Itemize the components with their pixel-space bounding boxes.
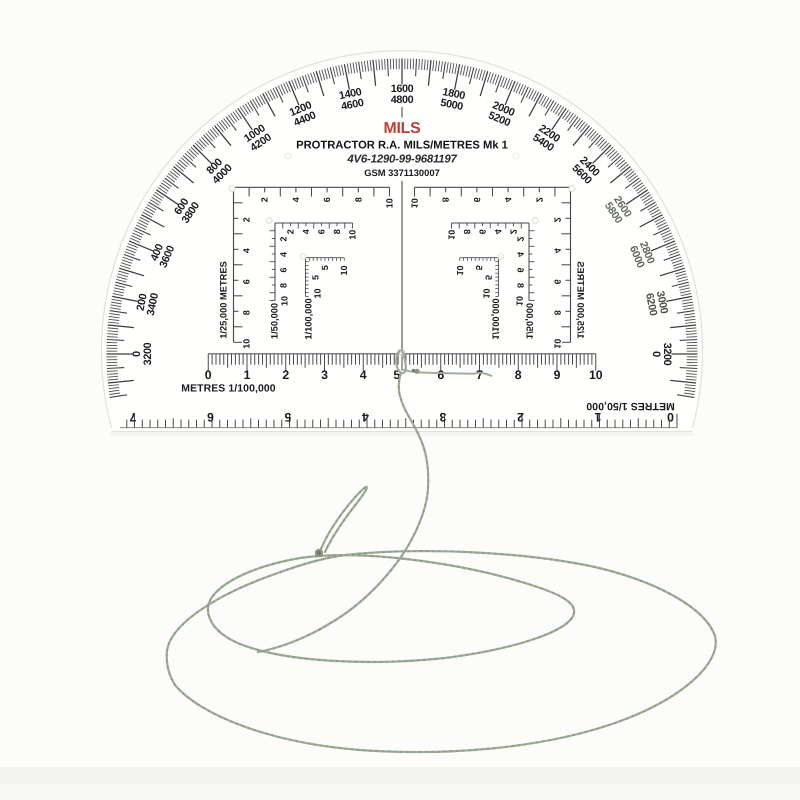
svg-text:10: 10 xyxy=(589,368,603,382)
svg-text:6: 6 xyxy=(207,410,214,424)
svg-text:2: 2 xyxy=(286,229,296,234)
svg-text:3: 3 xyxy=(439,410,446,424)
svg-text:8: 8 xyxy=(242,310,252,315)
svg-text:GSM 3371130007: GSM 3371130007 xyxy=(364,167,440,178)
svg-text:0: 0 xyxy=(650,351,662,357)
svg-text:8: 8 xyxy=(279,283,289,288)
svg-text:MILS: MILS xyxy=(384,120,421,137)
svg-text:10: 10 xyxy=(242,339,252,349)
svg-text:4: 4 xyxy=(291,197,301,202)
svg-text:2: 2 xyxy=(242,217,252,222)
svg-text:6: 6 xyxy=(242,279,252,284)
svg-text:6: 6 xyxy=(322,197,332,202)
svg-text:4V6-1290-99-9681197: 4V6-1290-99-9681197 xyxy=(346,153,457,165)
svg-text:METRES 1/100,000: METRES 1/100,000 xyxy=(181,384,276,395)
svg-text:8: 8 xyxy=(515,368,522,382)
svg-text:2: 2 xyxy=(517,410,524,424)
svg-text:1/25,000 METRES: 1/25,000 METRES xyxy=(219,261,229,339)
svg-text:METRES 1/50,000: METRES 1/50,000 xyxy=(586,400,675,411)
svg-text:4: 4 xyxy=(360,368,367,382)
svg-text:5: 5 xyxy=(320,265,330,270)
svg-text:3200: 3200 xyxy=(142,342,154,365)
svg-text:2: 2 xyxy=(282,368,289,382)
svg-text:6: 6 xyxy=(317,229,327,234)
svg-text:6: 6 xyxy=(437,368,444,382)
svg-text:5: 5 xyxy=(311,275,321,280)
svg-text:4: 4 xyxy=(301,229,311,234)
svg-text:10: 10 xyxy=(385,198,395,208)
svg-text:10: 10 xyxy=(313,288,323,298)
svg-text:10: 10 xyxy=(348,230,358,240)
svg-text:4: 4 xyxy=(242,248,252,253)
svg-text:1/50,000: 1/50,000 xyxy=(270,303,280,339)
svg-text:5: 5 xyxy=(284,410,291,424)
svg-text:1/100,000: 1/100,000 xyxy=(304,298,314,339)
svg-text:4: 4 xyxy=(279,252,289,257)
svg-text:2: 2 xyxy=(260,197,270,202)
svg-text:2: 2 xyxy=(279,236,289,241)
svg-text:0: 0 xyxy=(205,368,212,382)
svg-text:4: 4 xyxy=(362,410,369,424)
svg-text:PROTRACTOR R.A. MILS/METRES Mk: PROTRACTOR R.A. MILS/METRES Mk 1 xyxy=(296,139,508,151)
svg-text:3: 3 xyxy=(321,368,328,382)
svg-text:4800: 4800 xyxy=(391,94,414,106)
svg-text:9: 9 xyxy=(554,368,561,382)
svg-text:6: 6 xyxy=(279,267,289,272)
svg-text:7: 7 xyxy=(476,368,483,382)
svg-text:10: 10 xyxy=(339,265,349,275)
svg-text:10: 10 xyxy=(280,296,290,306)
svg-text:7: 7 xyxy=(129,410,136,424)
svg-text:8: 8 xyxy=(353,197,363,202)
svg-text:8: 8 xyxy=(332,229,342,234)
svg-text:1: 1 xyxy=(244,368,251,382)
